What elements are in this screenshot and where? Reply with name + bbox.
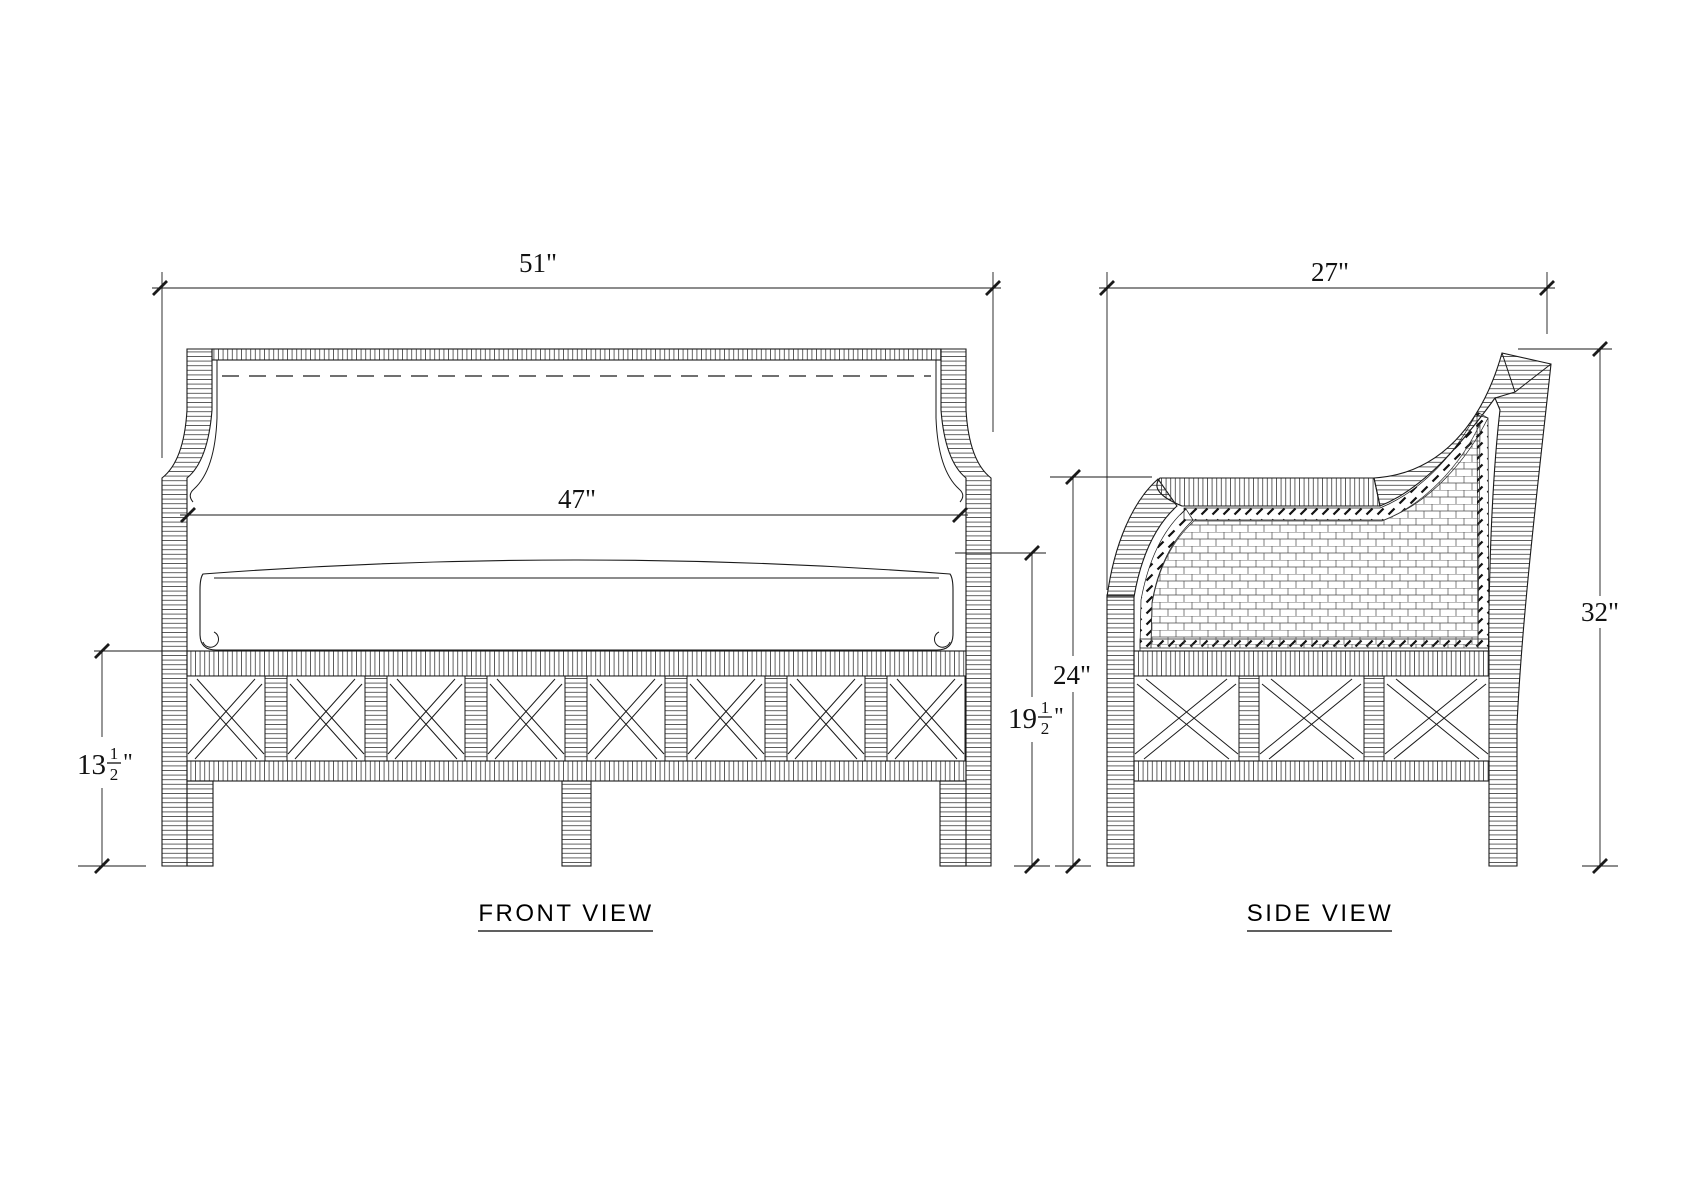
side-bottom-rail <box>1134 761 1489 781</box>
front-view-title: FRONT VIEW <box>478 900 653 927</box>
svg-text:19: 19 <box>1008 703 1037 735</box>
view-titles: FRONT VIEW SIDE VIEW <box>478 900 1393 931</box>
dim-label-19-half: 19 1 2 " <box>1008 698 1064 738</box>
side-lattice <box>1134 676 1489 761</box>
seat-cushion <box>200 560 953 650</box>
technical-drawing-page: 51" 47" 27" 24" 32" 13 1 2 " 19 1 2 " FR… <box>0 0 1684 1190</box>
side-view-drawing <box>1107 353 1551 866</box>
svg-text:13: 13 <box>77 749 106 781</box>
dim-label-47: 47" <box>558 484 596 514</box>
side-armrest-band <box>1157 478 1380 506</box>
side-apron-rail <box>1134 651 1489 676</box>
furniture-drawing-svg: 51" 47" 27" 24" 32" 13 1 2 " 19 1 2 " FR… <box>0 0 1684 1190</box>
svg-text:1: 1 <box>1041 698 1050 717</box>
dim-label-13-half: 13 1 2 " <box>77 744 133 784</box>
svg-text:": " <box>1054 704 1064 730</box>
dim-label-32: 32" <box>1581 597 1619 627</box>
dim-label-51: 51" <box>519 248 557 278</box>
dim-label-24: 24" <box>1053 660 1091 690</box>
front-lattice <box>187 676 965 761</box>
front-apron-rail <box>187 651 966 676</box>
svg-text:2: 2 <box>110 765 119 784</box>
front-top-rail <box>212 349 941 360</box>
dim-label-27: 27" <box>1311 257 1349 287</box>
front-view-drawing <box>162 349 991 866</box>
front-legs <box>187 781 966 866</box>
side-view-title: SIDE VIEW <box>1247 900 1394 927</box>
svg-text:2: 2 <box>1041 719 1050 738</box>
svg-text:": " <box>123 750 133 776</box>
side-front-post <box>1107 595 1134 866</box>
svg-text:1: 1 <box>110 744 119 763</box>
side-wicker-panel <box>1151 424 1480 648</box>
front-bottom-rail <box>187 761 966 781</box>
